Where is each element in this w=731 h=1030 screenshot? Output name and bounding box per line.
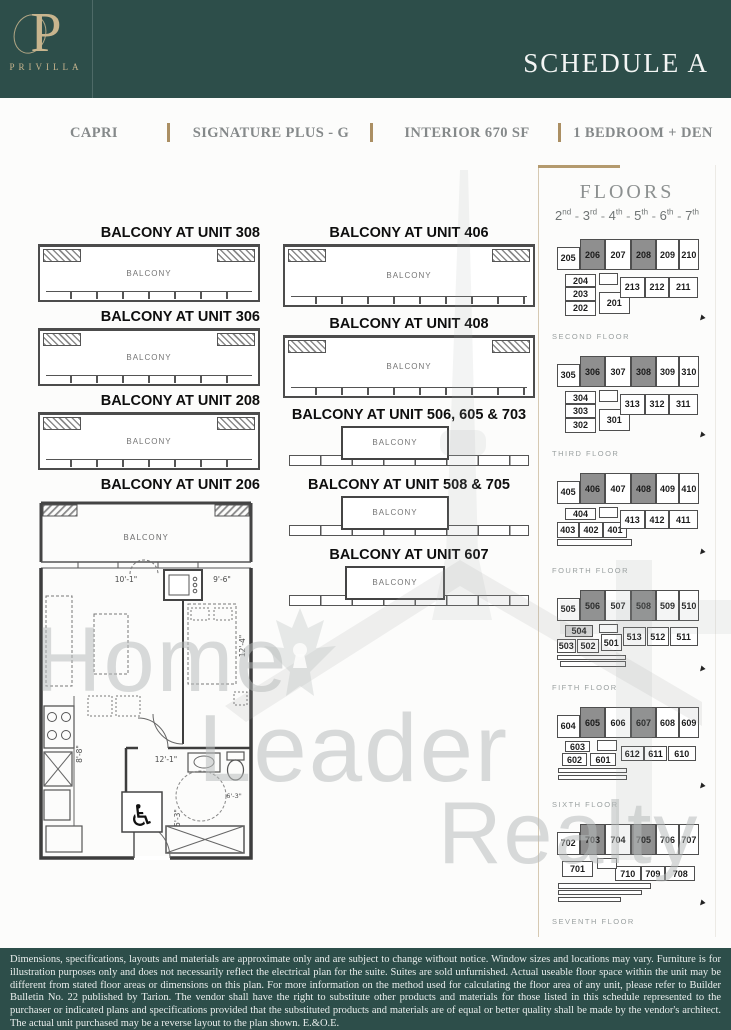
unit-cell-702: 702 xyxy=(557,832,580,856)
window-mullions xyxy=(291,296,527,304)
unit-cell-703: 703 xyxy=(580,824,606,855)
floor-range-item: 3rd xyxy=(583,208,597,223)
balcony-title: BALCONY AT UNIT 406 xyxy=(283,224,535,242)
unit-cell-604: 604 xyxy=(557,715,580,739)
unit-cell-403: 403 xyxy=(557,522,580,538)
floors-panel: FLOORS 2nd - 3rd - 4th - 5th - 6th - 7th… xyxy=(538,165,716,937)
north-arrow-icon: ◄ xyxy=(695,663,708,676)
balcony-label: BALCONY xyxy=(40,269,258,278)
footer-band: Dimensions, specifications, layouts and … xyxy=(0,948,731,1030)
balcony-title: BALCONY AT UNIT 306 xyxy=(38,308,260,326)
balcony-diagram-408: BALCONY AT UNIT 408 BALCONY xyxy=(283,315,535,398)
footer-disclaimer: Dimensions, specifications, layouts and … xyxy=(10,954,721,1030)
schedule-a-page: P PRIVILLA SCHEDULE A CAPRI SIGNATURE PL… xyxy=(0,0,731,1030)
unit-cell-509: 509 xyxy=(656,590,679,621)
floor-range-item: 2nd xyxy=(555,208,571,223)
floor-key-plan: 306307308309310305304303302301313312311◄ xyxy=(552,354,702,446)
window-mullions xyxy=(46,291,252,299)
balcony-diagram-308: BALCONY AT UNIT 308 BALCONY xyxy=(38,224,260,302)
brand-logo: P PRIVILLA xyxy=(0,0,93,98)
divider-bar xyxy=(558,123,561,142)
interior-size: INTERIOR 670 SF xyxy=(394,125,540,142)
plan-strip xyxy=(599,507,619,518)
brand-monogram-icon: P xyxy=(30,4,61,62)
balcony-title: BALCONY AT UNIT 508 & 705 xyxy=(283,476,535,494)
unit-cell-210: 210 xyxy=(679,239,699,270)
plan-strip xyxy=(557,655,626,661)
unit-cell-412: 412 xyxy=(645,510,669,529)
range-dash: - xyxy=(623,208,635,223)
north-arrow-icon: ◄ xyxy=(695,429,708,442)
unit-cell-306: 306 xyxy=(580,356,606,387)
balcony-diagram-508-705: BALCONY AT UNIT 508 & 705 BALCONY xyxy=(283,476,535,538)
floor-key-plan: 703704705706707702701710709708◄ xyxy=(552,822,702,914)
balcony-title: BALCONY AT UNIT 506, 605 & 703 xyxy=(283,406,535,424)
wall-hatch-icon xyxy=(288,340,326,353)
unit-cell-313: 313 xyxy=(620,394,646,415)
floor-range-item: 6th xyxy=(660,208,674,223)
unit-cell-705: 705 xyxy=(631,824,657,855)
unit-cell-508: 508 xyxy=(631,590,657,621)
range-dash: - xyxy=(648,208,660,223)
floor-caption: FIFTH FLOOR xyxy=(552,683,702,692)
unit-cell-402: 402 xyxy=(579,522,603,538)
plan-strip xyxy=(599,390,619,402)
divider-bar xyxy=(370,123,373,142)
floor-key-plan: 406407408409410405404403402401413412411◄ xyxy=(552,471,702,563)
unit-cell-206: 206 xyxy=(580,239,606,270)
unit-cell-207: 207 xyxy=(605,239,631,270)
wall-hatch-icon xyxy=(217,249,255,262)
balcony-diagram-306: BALCONY AT UNIT 306 BALCONY xyxy=(38,308,260,386)
floor-key-sixth-floor: 605606607608609604603602601612611610◄SIX… xyxy=(552,705,702,809)
unit-cell-609: 609 xyxy=(679,707,699,738)
unit-cell-601: 601 xyxy=(590,753,616,766)
wall-hatch-icon xyxy=(43,333,81,346)
balcony-label: BALCONY xyxy=(347,578,443,587)
unit-cell-610: 610 xyxy=(668,746,697,762)
balcony-drawing: BALCONY xyxy=(38,244,260,302)
floor-key-list: 206207208209210205204203202201213212211◄… xyxy=(539,237,715,926)
unit-cell-603: 603 xyxy=(565,741,591,752)
plan-strip xyxy=(599,273,619,285)
balcony-label: BALCONY xyxy=(343,508,447,517)
unit-cell-411: 411 xyxy=(669,510,698,529)
floor-key-fourth-floor: 406407408409410405404403402401413412411◄… xyxy=(552,471,702,575)
plan-strip xyxy=(557,539,632,545)
plan-strip xyxy=(558,883,651,889)
floor-key-seventh-floor: 703704705706707702701710709708◄SEVENTH F… xyxy=(552,822,702,926)
balcony-diagram-208: BALCONY AT UNIT 208 BALCONY xyxy=(38,392,260,470)
dim-kitchen-length: 8'-8" xyxy=(75,745,84,763)
balcony-drawing: BALCONY xyxy=(283,244,535,307)
floor-range: 2nd - 3rd - 4th - 5th - 6th - 7th xyxy=(539,208,715,223)
unit-cell-506: 506 xyxy=(580,590,606,621)
unit-cell-303: 303 xyxy=(565,404,597,417)
plan-strip xyxy=(560,661,626,667)
balcony-label: BALCONY xyxy=(40,353,258,362)
unit-cell-213: 213 xyxy=(620,277,646,298)
unit-cell-513: 513 xyxy=(623,627,646,646)
dim-bath-width: 5'-3" xyxy=(173,809,182,827)
balcony-diagram-506-605-703: BALCONY AT UNIT 506, 605 & 703 BALCONY xyxy=(283,406,535,468)
unit-cell-407: 407 xyxy=(605,473,631,504)
unit-cell-512: 512 xyxy=(647,627,670,646)
wall-hatch-icon xyxy=(288,249,326,262)
window-mullions xyxy=(46,459,252,467)
unit-cell-209: 209 xyxy=(656,239,679,270)
unit-cell-211: 211 xyxy=(669,277,698,298)
plan-strip xyxy=(558,897,621,903)
unit-cell-710: 710 xyxy=(615,866,641,881)
unit-cell-312: 312 xyxy=(645,394,669,415)
unit-cell-511: 511 xyxy=(670,627,698,646)
plan-type: SIGNATURE PLUS - G xyxy=(181,125,361,142)
unit-cell-701: 701 xyxy=(562,861,594,877)
unit-cell-406: 406 xyxy=(580,473,606,504)
unit-cell-205: 205 xyxy=(557,247,580,271)
balcony-drawing: BALCONY xyxy=(38,328,260,386)
unit-cell-706: 706 xyxy=(656,824,679,855)
unit-cell-504: 504 xyxy=(565,625,594,637)
unit-cell-605: 605 xyxy=(580,707,606,738)
balcony-drawing: BALCONY xyxy=(38,412,260,470)
unit-cell-304: 304 xyxy=(565,391,597,404)
floor-key-third-floor: 306307308309310305304303302301313312311◄… xyxy=(552,354,702,458)
unit-cell-305: 305 xyxy=(557,364,580,388)
balcony-box: BALCONY xyxy=(341,496,449,530)
unit-cell-707: 707 xyxy=(679,824,699,855)
unit-cell-204: 204 xyxy=(565,274,597,287)
floor-key-second-floor: 206207208209210205204203202201213212211◄… xyxy=(552,237,702,341)
north-arrow-icon: ◄ xyxy=(695,546,708,559)
balcony-box: BALCONY xyxy=(341,426,449,460)
unit-cell-502: 502 xyxy=(577,639,600,653)
north-arrow-icon: ◄ xyxy=(695,897,708,910)
balcony-diagram-406: BALCONY AT UNIT 406 BALCONY xyxy=(283,224,535,307)
floors-heading: FLOORS xyxy=(539,181,715,204)
balcony-label: BALCONY xyxy=(40,437,258,446)
floor-caption: SECOND FLOOR xyxy=(552,332,702,341)
range-dash: - xyxy=(571,208,583,223)
balcony-room-label: BALCONY xyxy=(123,533,168,542)
unit-cell-302: 302 xyxy=(565,418,597,433)
left-balcony-column: BALCONY AT UNIT 308 BALCONY BALCONY AT U… xyxy=(38,224,260,868)
unit-cell-311: 311 xyxy=(669,394,698,415)
floor-range-item: 5th xyxy=(634,208,648,223)
divider-bar xyxy=(167,123,170,142)
unit-cell-709: 709 xyxy=(641,866,664,881)
unit-cell-501: 501 xyxy=(601,634,622,651)
unit-cell-602: 602 xyxy=(562,753,588,766)
balcony-title: BALCONY AT UNIT 206 xyxy=(38,476,260,494)
unit-cell-208: 208 xyxy=(631,239,657,270)
unit-cell-413: 413 xyxy=(620,510,646,529)
wall-hatch-icon xyxy=(492,340,530,353)
north-arrow-icon: ◄ xyxy=(695,780,708,793)
wheelchair-icon: ♿ xyxy=(129,799,156,834)
unit-cell-608: 608 xyxy=(656,707,679,738)
plan-strip xyxy=(597,740,617,751)
wall-hatch-icon xyxy=(43,249,81,262)
unit-cell-704: 704 xyxy=(605,824,631,855)
unit-cell-503: 503 xyxy=(557,639,577,653)
bedroom-config: 1 BEDROOM + DEN xyxy=(568,125,718,142)
floor-key-plan: 206207208209210205204203202201213212211◄ xyxy=(552,237,702,329)
floor-key-plan: 605606607608609604603602601612611610◄ xyxy=(552,705,702,797)
unit-cell-307: 307 xyxy=(605,356,631,387)
maple-leaf-watermark-icon xyxy=(264,608,336,696)
floor-range-item: 7th xyxy=(685,208,699,223)
floor-caption: FOURTH FLOOR xyxy=(552,566,702,575)
middle-balcony-column: BALCONY AT UNIT 406 BALCONY BALCONY AT U… xyxy=(283,224,535,616)
gold-accent-line xyxy=(538,165,620,168)
unit-cell-408: 408 xyxy=(631,473,657,504)
unit-cell-611: 611 xyxy=(644,746,667,762)
range-dash: - xyxy=(674,208,686,223)
unit-206-floor-plan: BALCONY AT UNIT 206 BALCONY xyxy=(38,476,260,862)
header-band: P PRIVILLA SCHEDULE A xyxy=(0,0,731,98)
unit-cell-507: 507 xyxy=(605,590,631,621)
range-dash: - xyxy=(597,208,609,223)
floor-caption: SEVENTH FLOOR xyxy=(552,917,702,926)
unit-cell-606: 606 xyxy=(605,707,631,738)
wall-hatch-icon xyxy=(492,249,530,262)
plan-strip xyxy=(558,768,627,774)
balcony-title: BALCONY AT UNIT 607 xyxy=(283,546,535,564)
floor-caption: THIRD FLOOR xyxy=(552,449,702,458)
floor-caption: SIXTH FLOOR xyxy=(552,800,702,809)
wall-hatch-icon xyxy=(217,333,255,346)
floor-key-fifth-floor: 506507508509510505504503502501513512511◄… xyxy=(552,588,702,692)
unit-cell-607: 607 xyxy=(631,707,657,738)
balcony-diagram-607: BALCONY AT UNIT 607 BALCONY xyxy=(283,546,535,608)
plan-strip xyxy=(597,858,617,869)
unit-cell-505: 505 xyxy=(557,598,580,622)
unit-cell-410: 410 xyxy=(679,473,699,504)
model-name: CAPRI xyxy=(48,125,140,142)
plan-strip xyxy=(599,624,619,633)
unit-cell-404: 404 xyxy=(565,508,597,520)
dim-living-width: 10'-1" xyxy=(115,575,138,584)
balcony-title: BALCONY AT UNIT 208 xyxy=(38,392,260,410)
unit-cell-708: 708 xyxy=(665,866,695,881)
dim-entry-width: 6'-3" xyxy=(226,792,241,800)
floor-range-item: 4th xyxy=(609,208,623,223)
unit-cell-309: 309 xyxy=(656,356,679,387)
unit-cell-212: 212 xyxy=(645,277,669,298)
window-mullions xyxy=(291,387,527,395)
balcony-drawing: BALCONY xyxy=(283,566,535,608)
wall-hatch-icon xyxy=(217,417,255,430)
unit-cell-510: 510 xyxy=(679,590,699,621)
unit-cell-202: 202 xyxy=(565,301,597,316)
balcony-drawing: BALCONY xyxy=(283,496,535,538)
unit-cell-310: 310 xyxy=(679,356,699,387)
unit-floor-plan-drawing: BALCONY xyxy=(38,496,254,862)
dim-hall-length: 12'-1" xyxy=(155,755,178,764)
plan-summary-bar: CAPRI SIGNATURE PLUS - G INTERIOR 670 SF… xyxy=(0,120,731,152)
balcony-label: BALCONY xyxy=(285,271,533,280)
window-mullions xyxy=(46,375,252,383)
balcony-title: BALCONY AT UNIT 308 xyxy=(38,224,260,242)
unit-cell-203: 203 xyxy=(565,287,597,300)
balcony-box: BALCONY xyxy=(345,566,445,600)
north-arrow-icon: ◄ xyxy=(695,312,708,325)
balcony-label: BALCONY xyxy=(343,438,447,447)
plan-strip xyxy=(558,775,627,781)
unit-cell-308: 308 xyxy=(631,356,657,387)
plan-strip xyxy=(558,890,642,896)
balcony-title: BALCONY AT UNIT 408 xyxy=(283,315,535,333)
page-title: SCHEDULE A xyxy=(523,48,709,79)
unit-cell-612: 612 xyxy=(621,746,644,762)
dim-bed-width: 9'-6" xyxy=(213,575,231,584)
unit-cell-409: 409 xyxy=(656,473,679,504)
dim-bed-length: 12'-4" xyxy=(238,635,247,658)
unit-cell-405: 405 xyxy=(557,481,580,505)
floor-key-plan: 506507508509510505504503502501513512511◄ xyxy=(552,588,702,680)
balcony-label: BALCONY xyxy=(285,362,533,371)
balcony-drawing: BALCONY xyxy=(283,426,535,468)
balcony-drawing: BALCONY xyxy=(283,335,535,398)
wall-hatch-icon xyxy=(43,417,81,430)
